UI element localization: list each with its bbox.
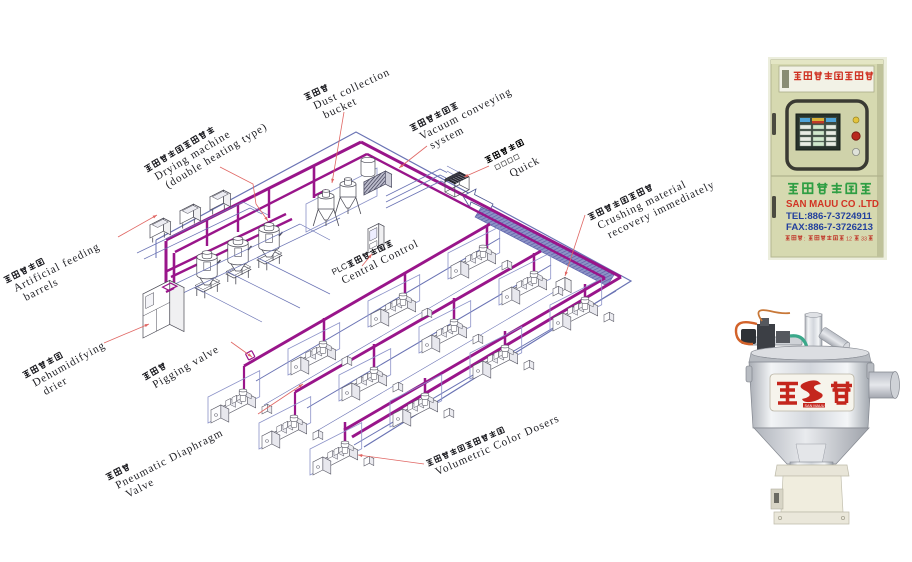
svg-text:SAN MAUU: SAN MAUU (805, 404, 825, 408)
svg-text:12: 12 (846, 237, 852, 243)
svg-text::: : (804, 237, 806, 243)
svg-text:TEL:886-7-3724911: TEL:886-7-3724911 (786, 211, 873, 222)
svg-text:FAX:886-7-3726213: FAX:886-7-3726213 (786, 222, 873, 233)
svg-text:SAN MAUU CO .LTD: SAN MAUU CO .LTD (786, 199, 879, 210)
svg-text:33: 33 (861, 237, 867, 243)
